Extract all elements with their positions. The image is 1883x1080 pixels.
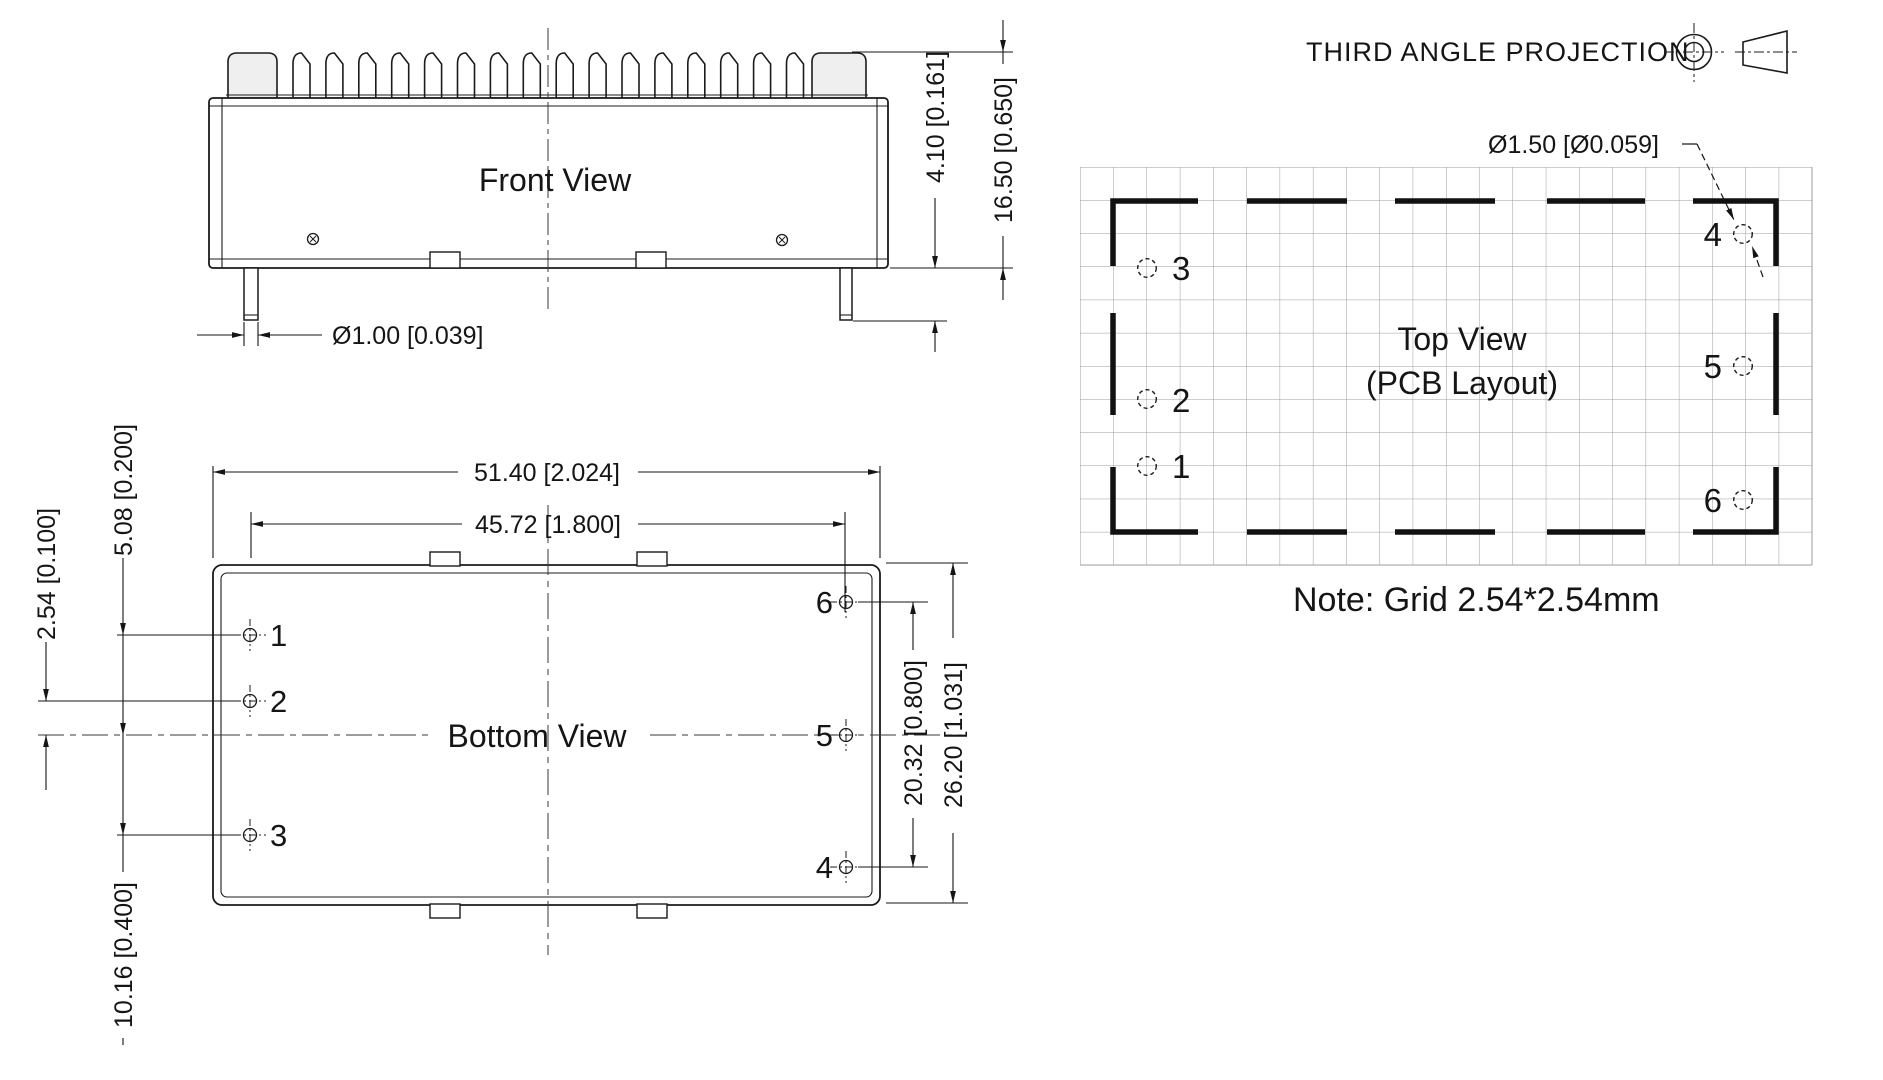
front-tab-left xyxy=(430,252,460,268)
grid-note: Note: Grid 2.54*2.54mm xyxy=(1293,581,1660,619)
top-view: 3 2 1 4 5 6 Ø1.50 [Ø0.059] Top View (PCB… xyxy=(1080,131,1812,619)
pin-label-4: 4 xyxy=(816,850,833,885)
projection-circle-icon xyxy=(1664,23,1724,82)
bottom-view: 1 2 3 6 5 4 Bottom View 51.40 [2.024] 45… xyxy=(33,424,968,1045)
front-pin-left xyxy=(244,268,258,320)
bottom-tab-top-left xyxy=(430,552,460,566)
dim-hole-diameter-text: Ø1.50 [Ø0.059] xyxy=(1488,131,1659,159)
hole-label-4: 4 xyxy=(1704,216,1722,253)
front-tab-right xyxy=(636,252,666,268)
bottom-tab-top-right xyxy=(637,552,667,566)
bottom-view-label: Bottom View xyxy=(447,718,627,754)
hole-label-1: 1 xyxy=(1172,448,1190,485)
hole-label-3: 3 xyxy=(1172,250,1190,287)
bottom-tab-bottom-right xyxy=(637,904,667,918)
technical-drawing: Front View Ø1.00 [0.039] 4.10 [0.161] 16… xyxy=(0,0,1883,1080)
top-view-label: Top View xyxy=(1397,321,1527,357)
projection-cone-icon xyxy=(1735,31,1797,73)
dim-pin-length-text: 4.10 [0.161] xyxy=(922,51,950,183)
pin-label-5: 5 xyxy=(816,718,833,753)
dim-pitch-2-3-text: 10.16 [0.400] xyxy=(110,882,138,1028)
projection-label: THIRD ANGLE PROJECTION xyxy=(1306,37,1690,67)
dim-pitch-center-text: 2.54 [0.100] xyxy=(33,508,61,640)
dim-pin-diameter-text: Ø1.00 [0.039] xyxy=(332,322,484,350)
heatsink-fins xyxy=(226,53,868,98)
top-view-sublabel: (PCB Layout) xyxy=(1366,365,1558,401)
hole-label-6: 6 xyxy=(1704,482,1722,519)
dim-pitch-lines xyxy=(38,558,238,1045)
dim-module-height-text: 16.50 [0.650] xyxy=(990,77,1018,223)
projection-symbol: THIRD ANGLE PROJECTION xyxy=(1306,23,1797,82)
front-pin-right xyxy=(840,268,852,320)
pin-label-1: 1 xyxy=(270,618,287,653)
front-view: Front View Ø1.00 [0.039] 4.10 [0.161] 16… xyxy=(197,20,1018,352)
dim-pin-span-y-text: 20.32 [0.800] xyxy=(900,660,928,806)
front-view-label: Front View xyxy=(479,162,632,198)
heatsink-fin-end-left xyxy=(228,53,277,98)
hole-label-2: 2 xyxy=(1172,382,1190,419)
mechanical-drawing-page: Front View Ø1.00 [0.039] 4.10 [0.161] 16… xyxy=(0,0,1883,1080)
dim-pitch-1-2-text: 5.08 [0.200] xyxy=(110,424,138,556)
dim-pin-span-x-text: 45.72 [1.800] xyxy=(475,511,621,539)
hole-label-5: 5 xyxy=(1704,348,1722,385)
dim-module-length-text: 51.40 [2.024] xyxy=(474,459,620,487)
bottom-tab-bottom-left xyxy=(430,904,460,918)
dim-module-width-text: 26.20 [1.031] xyxy=(940,662,968,808)
heatsink-fin-end-right xyxy=(812,53,866,98)
pin-label-2: 2 xyxy=(270,684,287,719)
pin-label-6: 6 xyxy=(816,585,833,620)
pin-label-3: 3 xyxy=(270,818,287,853)
dim-pin-diameter xyxy=(197,322,322,346)
